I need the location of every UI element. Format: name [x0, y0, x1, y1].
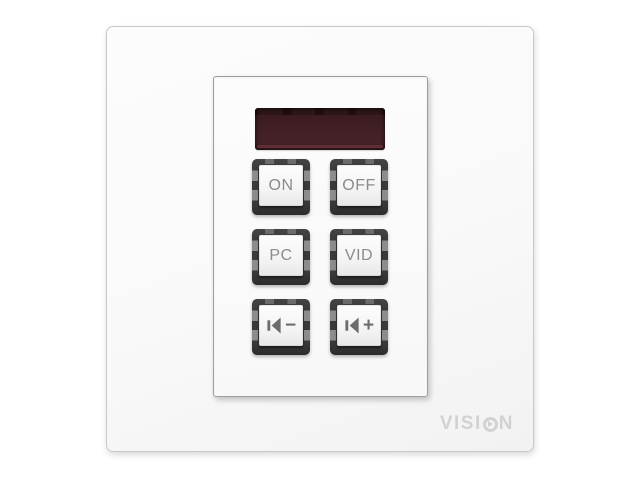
- faceplate: ON OFF PC: [106, 26, 534, 452]
- key-light-pipe: [261, 229, 301, 234]
- keycap: −: [259, 305, 303, 346]
- keycap: ON: [259, 165, 303, 206]
- key-grid: ON OFF PC: [252, 159, 388, 355]
- play-icon: [483, 417, 498, 432]
- speaker-minus-icon: [266, 315, 283, 336]
- led-display-text: [255, 108, 385, 150]
- key-volume-down[interactable]: −: [252, 299, 310, 355]
- key-light-pipe: [339, 229, 379, 234]
- keycap: +: [337, 305, 381, 346]
- keypad-module: ON OFF PC: [213, 76, 428, 397]
- keycap: VID: [337, 235, 381, 276]
- key-light-pipe: [339, 299, 379, 304]
- key-on[interactable]: ON: [252, 159, 310, 215]
- key-light-pipe: [261, 299, 301, 304]
- key-label: PC: [269, 248, 292, 264]
- speaker-plus-icon: [344, 315, 361, 336]
- key-light-pipe: [339, 159, 379, 164]
- keycap: OFF: [337, 165, 381, 206]
- key-label: OFF: [342, 178, 376, 194]
- key-pc[interactable]: PC: [252, 229, 310, 285]
- minus-sign: −: [285, 316, 296, 335]
- brand-text-suffix: N: [499, 413, 514, 435]
- product-render: ON OFF PC: [0, 0, 640, 480]
- brand-text-prefix: VISI: [440, 413, 482, 435]
- key-volume-up[interactable]: +: [330, 299, 388, 355]
- key-label: ON: [269, 178, 294, 194]
- led-display: [255, 108, 385, 150]
- key-label: VID: [345, 248, 373, 264]
- key-off[interactable]: OFF: [330, 159, 388, 215]
- play-triangle: [488, 421, 493, 427]
- key-light-pipe: [261, 159, 301, 164]
- keycap: PC: [259, 235, 303, 276]
- plus-sign: +: [363, 316, 374, 335]
- key-vid[interactable]: VID: [330, 229, 388, 285]
- vision-brand-logo: VISI N: [440, 413, 514, 435]
